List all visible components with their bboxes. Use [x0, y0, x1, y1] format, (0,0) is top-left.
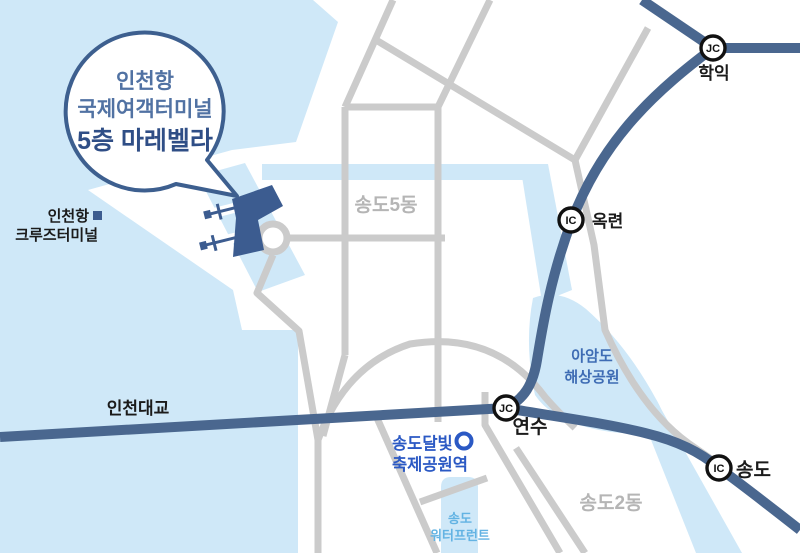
bubble-line-1: 인천항	[116, 69, 174, 93]
badge-type: JC	[706, 43, 720, 55]
canal	[262, 164, 548, 180]
crane-icon	[202, 242, 204, 250]
bubble-line-2: 국제여객터미널	[77, 98, 212, 121]
crane-icon	[207, 211, 209, 219]
cruise-terminal-marker	[93, 211, 102, 220]
badge-type: IC	[566, 215, 577, 227]
badge-type: JC	[499, 403, 513, 415]
cruise-terminal-label-line1: 인천항	[48, 207, 90, 225]
ic-badge-okryeon: IC 옥련	[559, 208, 623, 232]
badge-label-yeonsu: 연수	[513, 416, 548, 438]
badge-label-songdo: 송도	[736, 459, 771, 481]
aamdo-park-label-line1: 아암도	[571, 347, 613, 365]
aamdo-park-label-line2: 해상공원	[564, 369, 619, 386]
district-label-songdo2: 송도2동	[579, 492, 642, 514]
subway-station-icon	[457, 434, 472, 449]
district-label-songdo5: 송도5동	[354, 194, 417, 216]
badge-type: IC	[714, 463, 725, 475]
cruise-terminal-label-line2: 크루즈터미널	[15, 227, 98, 244]
bubble-line-3: 5층 마레벨라	[77, 127, 213, 155]
map-canvas: 송도5동 송도2동 아암도 해상공원 송도 워터프런트 인천대교 송도달빛 축제…	[0, 0, 800, 553]
incheon-bridge-label: 인천대교	[107, 399, 170, 418]
badge-label-hagik: 학익	[698, 64, 729, 83]
waterfront-label-line2: 워터프런트	[430, 528, 490, 543]
station-label-line1: 송도달빛	[392, 433, 453, 453]
waterfront-label-line1: 송도	[448, 511, 472, 526]
location-map: 송도5동 송도2동 아암도 해상공원 송도 워터프런트 인천대교 송도달빛 축제…	[0, 0, 800, 553]
ic-badge-songdo: IC 송도	[707, 456, 771, 481]
badge-label-okryeon: 옥련	[592, 212, 623, 231]
station-label-line2: 축제공원역	[392, 455, 468, 474]
